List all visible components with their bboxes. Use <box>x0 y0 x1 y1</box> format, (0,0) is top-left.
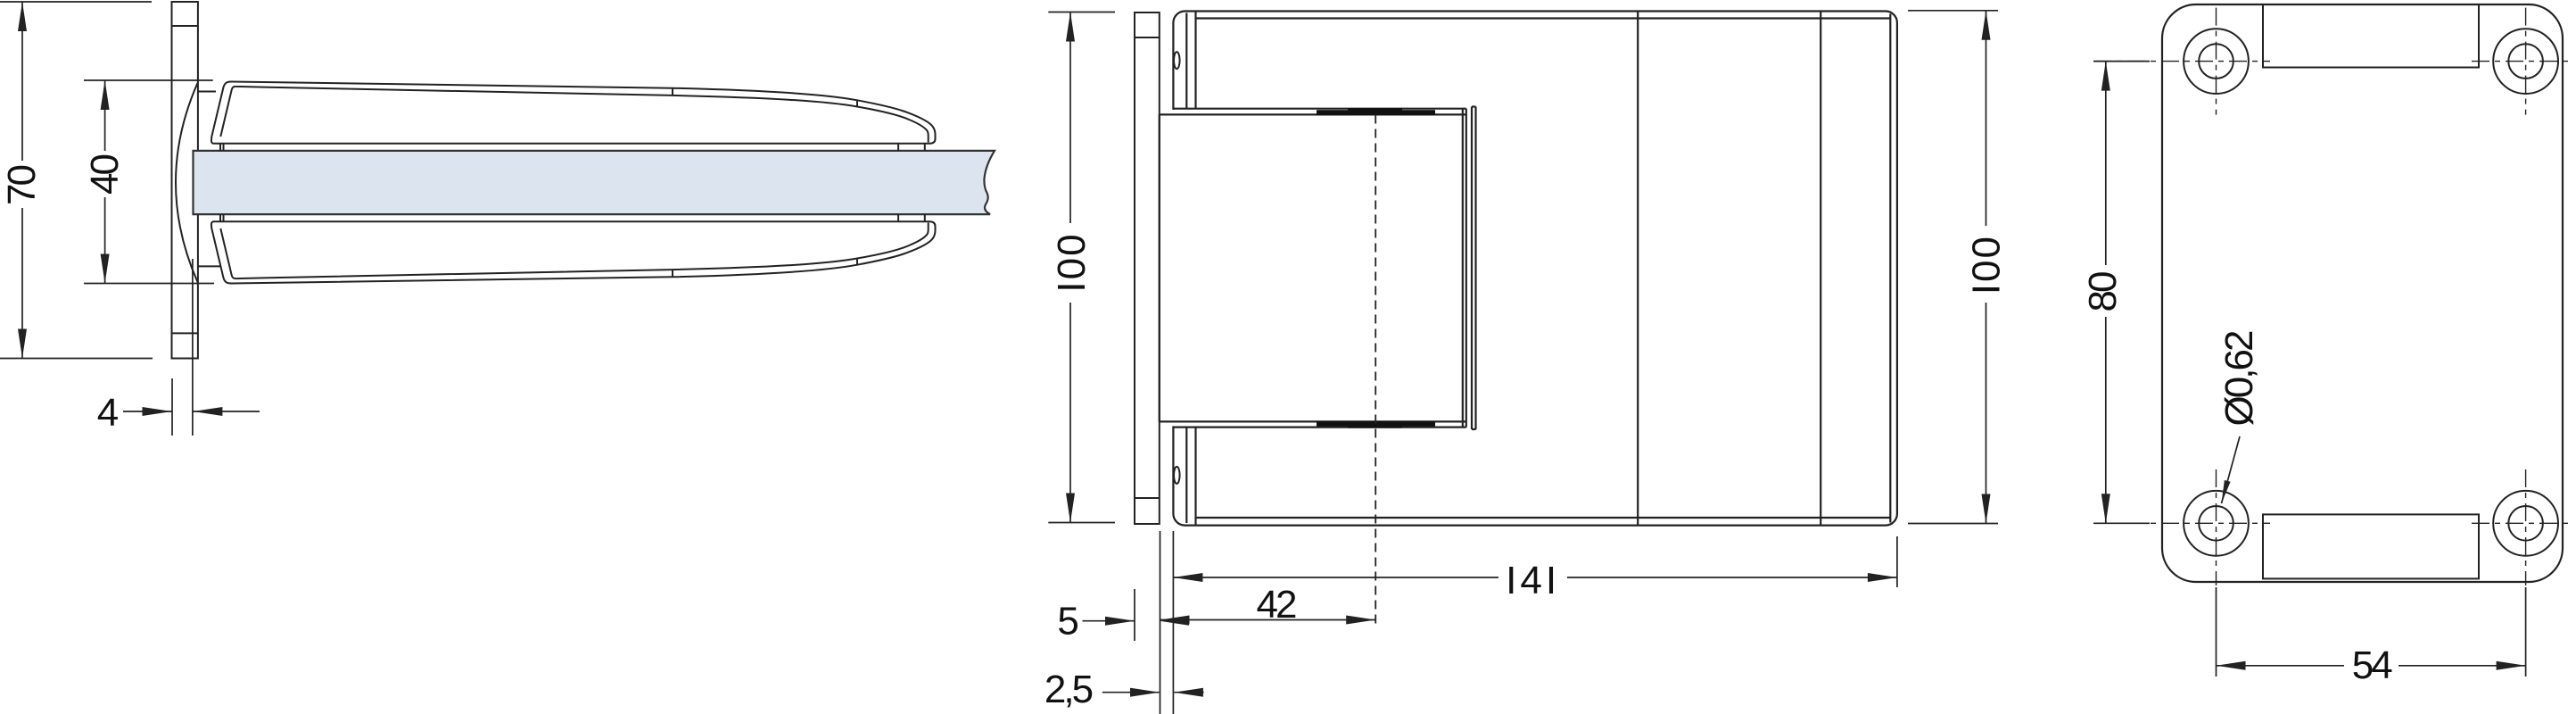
svg-text:54: 54 <box>2352 643 2392 687</box>
svg-text:40: 40 <box>83 155 127 195</box>
svg-text:I00: I00 <box>1050 232 1094 292</box>
svg-text:2,5: 2,5 <box>1044 668 1093 711</box>
svg-text:80: 80 <box>2081 272 2125 311</box>
svg-text:42: 42 <box>1257 583 1296 627</box>
svg-text:70: 70 <box>0 166 44 205</box>
svg-text:I00: I00 <box>1965 235 2009 295</box>
svg-text:Ø0,62: Ø0,62 <box>2217 331 2261 426</box>
svg-text:5: 5 <box>1057 599 1078 643</box>
svg-text:I4I: I4I <box>1506 559 1560 602</box>
svg-text:4: 4 <box>97 391 119 435</box>
